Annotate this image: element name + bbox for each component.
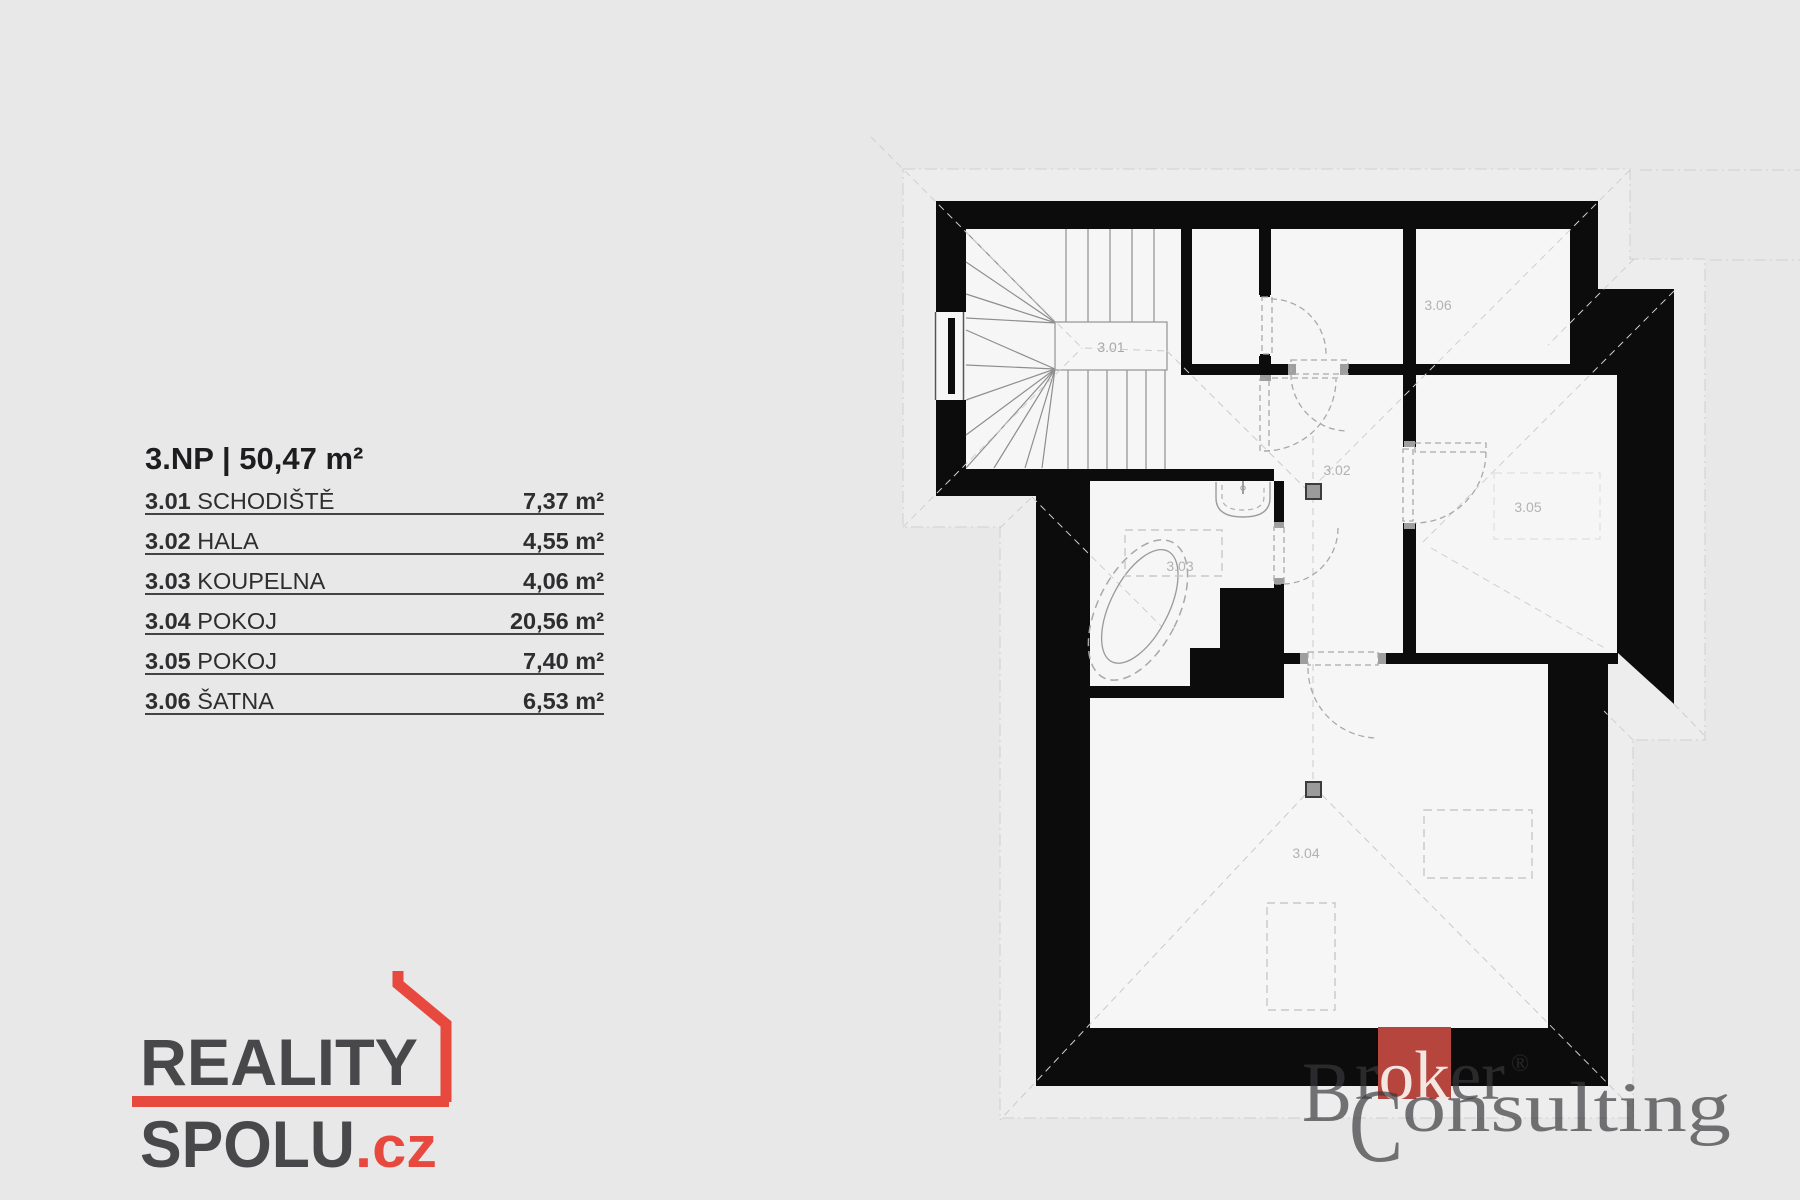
svg-text:3.04 POKOJ: 3.04 POKOJ — [145, 608, 277, 634]
svg-text:7,40 m²: 7,40 m² — [523, 648, 604, 674]
svg-text:3.02 HALA: 3.02 HALA — [145, 528, 259, 554]
svg-text:C: C — [1349, 1067, 1403, 1184]
svg-text:3.03 KOUPELNA: 3.03 KOUPELNA — [145, 568, 326, 594]
svg-text:4,55 m²: 4,55 m² — [523, 528, 604, 554]
svg-text:6,53 m²: 6,53 m² — [523, 688, 604, 714]
svg-text:onsulting: onsulting — [1402, 1069, 1731, 1147]
svg-text:B: B — [1302, 1044, 1352, 1140]
svg-text:3.01: 3.01 — [1097, 339, 1124, 355]
svg-text:20,56 m²: 20,56 m² — [510, 608, 604, 634]
svg-text:3.06: 3.06 — [1424, 297, 1451, 313]
svg-text:3.02: 3.02 — [1323, 462, 1350, 478]
svg-text:3.01 SCHODIŠTĚ: 3.01 SCHODIŠTĚ — [145, 487, 334, 514]
svg-text:REALITY: REALITY — [140, 1025, 418, 1099]
svg-text:3.06 ŠATNA: 3.06 ŠATNA — [145, 687, 274, 714]
svg-text:3.03: 3.03 — [1166, 558, 1193, 574]
svg-text:SPOLU: SPOLU — [140, 1107, 355, 1181]
svg-text:.cz: .cz — [355, 1115, 437, 1180]
svg-text:7,37 m²: 7,37 m² — [523, 488, 604, 514]
svg-text:3.04: 3.04 — [1292, 845, 1319, 861]
svg-text:3.05 POKOJ: 3.05 POKOJ — [145, 648, 277, 674]
svg-text:3.NP | 50,47 m²: 3.NP | 50,47 m² — [145, 441, 363, 476]
svg-text:4,06 m²: 4,06 m² — [523, 568, 604, 594]
svg-text:3.05: 3.05 — [1514, 499, 1541, 515]
